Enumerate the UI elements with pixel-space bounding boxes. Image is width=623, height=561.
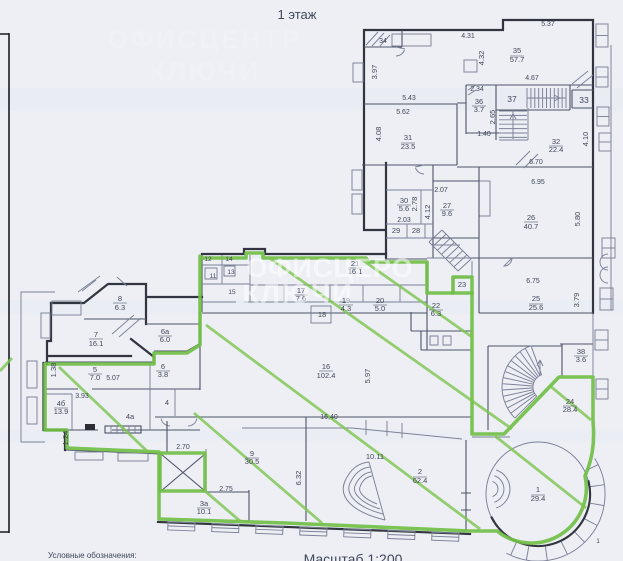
svg-text:34: 34 — [379, 38, 387, 45]
svg-text:7: 7 — [94, 330, 98, 339]
svg-text:2.70: 2.70 — [176, 444, 190, 451]
svg-text:3.79: 3.79 — [572, 293, 581, 308]
svg-text:3.6: 3.6 — [576, 355, 586, 364]
svg-text:3.8: 3.8 — [158, 370, 168, 379]
svg-text:3.7: 3.7 — [474, 105, 484, 114]
svg-text:102.4: 102.4 — [317, 371, 336, 380]
svg-text:33: 33 — [579, 95, 589, 105]
svg-text:18: 18 — [318, 310, 326, 319]
svg-text:16: 16 — [322, 362, 330, 371]
svg-text:8: 8 — [118, 294, 122, 303]
svg-text:5.80: 5.80 — [573, 212, 582, 227]
svg-text:2.75: 2.75 — [219, 486, 233, 493]
svg-text:4.08: 4.08 — [374, 127, 383, 142]
svg-text:2.03: 2.03 — [397, 217, 411, 224]
svg-text:5.6: 5.6 — [399, 204, 409, 213]
svg-text:2.07: 2.07 — [434, 187, 448, 194]
svg-text:25: 25 — [532, 294, 540, 303]
svg-text:22.4: 22.4 — [549, 145, 564, 154]
svg-text:4.12: 4.12 — [423, 205, 432, 220]
svg-text:4.10: 4.10 — [581, 132, 590, 147]
svg-text:Масштаб 1:200: Масштаб 1:200 — [304, 551, 403, 561]
svg-text:5.97: 5.97 — [363, 369, 372, 384]
svg-text:4: 4 — [165, 398, 169, 407]
svg-text:26: 26 — [527, 213, 535, 222]
svg-text:6.75: 6.75 — [526, 278, 540, 285]
svg-text:14: 14 — [225, 256, 233, 263]
svg-text:30.5: 30.5 — [245, 457, 260, 466]
svg-text:1 этаж: 1 этаж — [278, 7, 317, 22]
svg-text:37: 37 — [507, 94, 517, 104]
svg-text:9.6: 9.6 — [442, 209, 452, 218]
svg-text:3.97: 3.97 — [370, 65, 379, 80]
svg-text:7.0: 7.0 — [90, 373, 100, 382]
svg-text:1: 1 — [596, 538, 600, 545]
svg-text:2: 2 — [418, 467, 422, 476]
svg-text:13: 13 — [227, 269, 235, 276]
svg-text:10.1: 10.1 — [197, 507, 212, 516]
svg-text:29: 29 — [392, 226, 400, 235]
svg-text:1.40: 1.40 — [477, 131, 491, 138]
svg-text:40.7: 40.7 — [524, 222, 539, 231]
svg-text:28: 28 — [412, 226, 420, 235]
svg-text:16.1: 16.1 — [89, 339, 104, 348]
svg-text:2.78: 2.78 — [410, 197, 419, 212]
svg-text:3.93: 3.93 — [75, 393, 89, 400]
svg-text:2.65: 2.65 — [488, 110, 497, 125]
svg-text:5.62: 5.62 — [396, 109, 410, 116]
svg-text:25.6: 25.6 — [529, 303, 544, 312]
svg-text:КЛЮЧИ: КЛЮЧИ — [242, 279, 353, 309]
svg-text:1: 1 — [536, 485, 540, 494]
svg-text:5.0: 5.0 — [375, 304, 385, 313]
svg-text:Условные обозначения:: Условные обозначения: — [48, 551, 137, 560]
svg-text:6.3: 6.3 — [115, 303, 125, 312]
svg-text:6.95: 6.95 — [531, 179, 545, 186]
svg-text:57.7: 57.7 — [510, 55, 525, 64]
svg-text:6.0: 6.0 — [160, 335, 170, 344]
svg-text:4.32: 4.32 — [477, 51, 486, 66]
svg-text:5.07: 5.07 — [106, 375, 120, 382]
svg-text:13.9: 13.9 — [54, 407, 69, 416]
svg-text:4а: 4а — [126, 412, 135, 421]
svg-text:5.37: 5.37 — [541, 21, 555, 28]
svg-text:6.32: 6.32 — [294, 471, 303, 486]
svg-text:31: 31 — [404, 133, 412, 142]
svg-text:ОФИСЦЕНТР: ОФИСЦЕНТР — [107, 24, 302, 54]
svg-text:11: 11 — [210, 273, 217, 280]
svg-text:16,40: 16,40 — [320, 414, 338, 421]
svg-text:29.4: 29.4 — [531, 494, 546, 503]
svg-text:4.31: 4.31 — [461, 33, 475, 40]
svg-text:23.5: 23.5 — [401, 142, 416, 151]
svg-text:КЛЮЧИ: КЛЮЧИ — [149, 56, 262, 86]
svg-text:4.67: 4.67 — [525, 75, 539, 82]
svg-text:62.4: 62.4 — [413, 476, 428, 485]
svg-text:28.4: 28.4 — [563, 405, 578, 414]
svg-text:12: 12 — [204, 256, 212, 263]
svg-text:35: 35 — [513, 46, 521, 55]
svg-text:23: 23 — [458, 280, 466, 289]
svg-text:1.24: 1.24 — [61, 431, 70, 446]
svg-text:6.70: 6.70 — [529, 159, 543, 166]
svg-text:15: 15 — [228, 289, 236, 296]
svg-text:6.3: 6.3 — [431, 309, 441, 318]
svg-text:2.34: 2.34 — [470, 86, 484, 93]
svg-text:1.38: 1.38 — [49, 363, 58, 378]
svg-text:10.11: 10.11 — [366, 452, 384, 461]
svg-text:5.43: 5.43 — [402, 95, 416, 102]
